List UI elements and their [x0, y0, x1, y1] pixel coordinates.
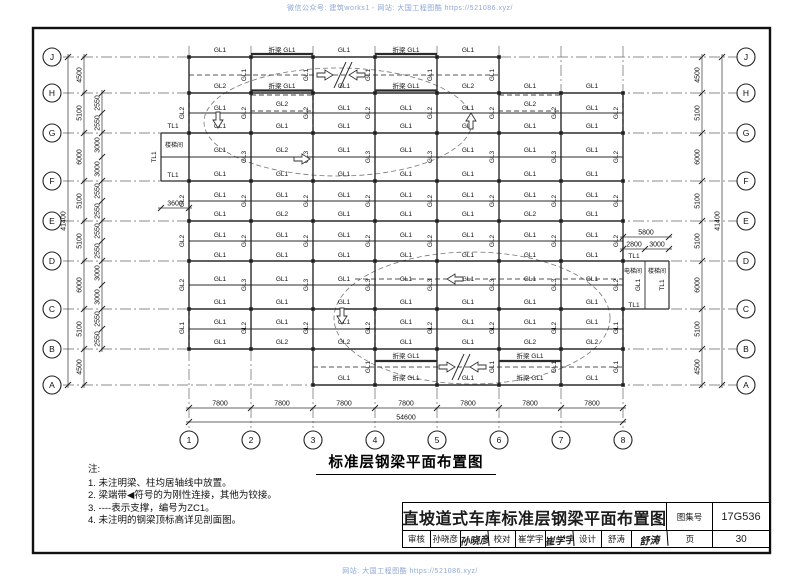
beam-label-vertical: GL1 — [489, 360, 496, 373]
axis-bubble-label: B — [743, 344, 749, 354]
notes-heading: 注: — [88, 464, 277, 477]
beam-label-vertical: GL3 — [303, 278, 310, 291]
beam-label: 折梁 GL1 — [268, 81, 295, 90]
column-node — [373, 259, 377, 263]
beam-label: GL1 — [214, 232, 227, 239]
beam-label-vertical: GL3 — [241, 278, 248, 291]
beam-label-vertical: GL2 — [303, 106, 310, 119]
dim-text: 5100 — [77, 233, 84, 249]
beam-label: GL1 — [462, 192, 475, 199]
column-node — [249, 307, 253, 311]
beam-label-vertical: GL2 — [365, 234, 372, 247]
ramp-direction-arrow — [439, 362, 455, 372]
column-node — [373, 55, 377, 59]
beam-label-vertical: GL3 — [427, 278, 434, 291]
beam-label: GL1 — [462, 339, 475, 346]
beam-label-vertical: GL1 — [427, 68, 434, 81]
column-node — [497, 347, 501, 351]
beam-label: GL2 — [276, 101, 289, 108]
beam-label-vertical: GL2 — [489, 106, 496, 119]
column-node — [187, 307, 191, 311]
dim-text: 6000 — [77, 149, 84, 165]
ramp-direction-arrow — [470, 362, 486, 372]
column-node — [249, 259, 253, 263]
dim-text: 2550 — [95, 203, 102, 219]
column-node — [249, 219, 253, 223]
beam-label: 折梁 GL1 — [516, 351, 543, 360]
beam-label: GL1 — [400, 105, 413, 112]
column-node — [187, 219, 191, 223]
beam-label: GL1 — [524, 299, 537, 306]
dim-text: 5100 — [77, 321, 84, 337]
column-node — [311, 91, 315, 95]
beam-label: GL1 — [524, 192, 537, 199]
beam-label-vertical: GL3 — [241, 150, 248, 163]
dim-text: 5100 — [695, 193, 702, 209]
beam-label-vertical: GL2 — [365, 106, 372, 119]
beam-label: GL1 — [400, 319, 413, 326]
axis-bubble-label: G — [49, 128, 56, 138]
column-node — [559, 347, 563, 351]
column-node — [497, 91, 501, 95]
axis-bubble-label: 5 — [435, 435, 440, 445]
dim-text: 5800 — [638, 230, 654, 237]
column-node — [497, 307, 501, 311]
beam-label: GL1 — [586, 276, 599, 283]
proofreader-name: 崔学宇 — [516, 531, 546, 547]
beam-label: GL1 — [338, 147, 351, 154]
beam-label: GL1 — [214, 147, 227, 154]
beam-label: GL1 — [338, 123, 351, 130]
column-node — [559, 91, 563, 95]
column-node — [311, 383, 315, 387]
column-node — [187, 91, 191, 95]
beam-label-vertical: GL2 — [427, 321, 434, 334]
beam-label: GL1 — [276, 171, 289, 178]
beam-label-vertical: GL2 — [179, 234, 186, 247]
beam-label-vertical: GL1 — [551, 360, 558, 373]
column-node — [187, 259, 191, 263]
beam-label: GL1 — [338, 375, 351, 382]
designer-signature: 舒涛 — [631, 530, 668, 548]
beam-label: GL1 — [462, 252, 475, 259]
axis-bubble-label: 4 — [373, 435, 378, 445]
atlas-number-label: 图集号 — [667, 503, 713, 530]
notes-block: 注: 1. 未注明梁、柱均居轴线中放置。 2. 梁端带◀符号的为刚性连接，其他为… — [88, 464, 277, 528]
column-node — [311, 259, 315, 263]
beam-label: GL1 — [586, 83, 599, 90]
axis-bubble-label: B — [49, 344, 55, 354]
proofreader-signature: 崔学宇 — [546, 530, 575, 548]
dim-text: 3000 — [95, 265, 102, 281]
column-node — [435, 179, 439, 183]
axis-bubble-label: 7 — [559, 435, 564, 445]
beam-label-vertical: GL2 — [489, 194, 496, 207]
beam-label: GL1 — [462, 171, 475, 178]
column-node — [435, 383, 439, 387]
dim-text: 5100 — [695, 105, 702, 121]
beam-label: GL1 — [338, 83, 351, 90]
dim-text: 7800 — [398, 401, 414, 408]
beam-label: GL1 — [462, 105, 475, 112]
column-node — [187, 347, 191, 351]
note-item: 1. 未注明梁、柱均居轴线中放置。 — [88, 478, 277, 491]
beam-label: GL1 — [214, 319, 227, 326]
beam-label-vertical: GL2 — [613, 150, 620, 163]
column-node — [435, 347, 439, 351]
beam-label: GL1 — [462, 299, 475, 306]
column-node — [373, 219, 377, 223]
reviewer-signature: 孙晓彦 — [460, 530, 489, 548]
dim-text: 6000 — [77, 277, 84, 293]
reviewer-name: 孙晓彦 — [431, 531, 461, 547]
beam-label: GL1 — [400, 147, 413, 154]
axis-bubble-label: 8 — [621, 435, 626, 445]
beam-label: GL1 — [462, 276, 475, 283]
beam-label-vertical: GL2 — [179, 106, 186, 119]
room-label: TL1 — [628, 302, 640, 309]
column-node — [559, 307, 563, 311]
column-node — [311, 307, 315, 311]
beam-label-vertical: GL2 — [427, 194, 434, 207]
beam-label: GL1 — [586, 319, 599, 326]
beam-label: GL1 — [338, 192, 351, 199]
beam-label: GL1 — [338, 47, 351, 54]
axis-bubble-label: C — [743, 304, 749, 314]
beam-label: GL1 — [276, 232, 289, 239]
beam-label: GL2 — [586, 339, 599, 346]
title-block-row-credits: 审核 孙晓彦 孙晓彦 校对 崔学宇 崔学宇 设计 舒涛 舒涛 页 30 — [403, 531, 769, 547]
beam-label-vertical: GL1 — [635, 278, 642, 291]
column-node — [621, 383, 625, 387]
beam-label: GL1 — [276, 299, 289, 306]
beam-label-vertical: GL2 — [613, 194, 620, 207]
beam-label: GL1 — [462, 375, 475, 382]
beam-label: GL1 — [214, 252, 227, 259]
beam-label: GL1 — [586, 299, 599, 306]
beam-label: GL1 — [214, 47, 227, 54]
beam-label: 折梁 GL1 — [516, 373, 543, 382]
beam-label: GL1 — [400, 276, 413, 283]
beam-label-vertical: GL3 — [365, 150, 372, 163]
beam-label: GL2 — [338, 339, 351, 346]
column-node — [435, 91, 439, 95]
beam-label: GL1 — [586, 123, 599, 130]
beam-label-vertical: GL2 — [427, 234, 434, 247]
beam-label: GL1 — [586, 252, 599, 259]
beam-label: GL1 — [524, 83, 537, 90]
beam-label: GL1 — [276, 192, 289, 199]
axis-bubble-label: C — [49, 304, 55, 314]
beam-label-vertical: GL2 — [365, 194, 372, 207]
beam-label: GL1 — [400, 211, 413, 218]
beam-label: GL1 — [338, 232, 351, 239]
axis-bubble-label: F — [49, 176, 54, 186]
beam-label-vertical: GL3 — [551, 150, 558, 163]
watermark-bottom: 网站: 大国工程图酷 https://521086.xyz/ — [250, 566, 570, 576]
beam-label: GL1 — [524, 147, 537, 154]
column-node — [249, 347, 253, 351]
room-label: TL1 — [628, 253, 640, 260]
beam-label: GL1 — [214, 171, 227, 178]
beam-label: GL1 — [400, 299, 413, 306]
column-node — [373, 307, 377, 311]
beam-label-vertical: GL2 — [241, 321, 248, 334]
beam-label-vertical: GL1 — [365, 360, 372, 373]
column-node — [559, 131, 563, 135]
beam-label: GL2 — [524, 101, 537, 108]
beam-label-vertical: GL2 — [613, 278, 620, 291]
dim-text: 7800 — [584, 401, 600, 408]
beam-label-vertical: GL3 — [489, 278, 496, 291]
beam-label: GL1 — [586, 105, 599, 112]
column-node — [311, 179, 315, 183]
note-item: 2. 梁端带◀符号的为刚性连接，其他为铰接。 — [88, 490, 277, 503]
dim-text: 2550 — [95, 95, 102, 111]
design-label: 设计 — [574, 531, 602, 547]
column-node — [497, 131, 501, 135]
column-node — [621, 179, 625, 183]
beam-label: GL1 — [586, 171, 599, 178]
dim-text: 2550 — [95, 183, 102, 199]
beam-label-vertical: GL2 — [489, 321, 496, 334]
beam-label-vertical: GL1 — [365, 68, 372, 81]
column-node — [621, 347, 625, 351]
axis-bubble-label: H — [49, 88, 55, 98]
dim-text: 2800 — [626, 242, 642, 249]
beam-label: GL1 — [524, 171, 537, 178]
designer-name: 舒涛 — [602, 531, 632, 547]
dim-text: 7800 — [522, 401, 538, 408]
beam-label-vertical: GL2 — [241, 234, 248, 247]
beam-label: GL1 — [586, 192, 599, 199]
sheet-title: 直坡道式车库标准层钢梁平面布置图 — [403, 503, 667, 530]
column-node — [311, 347, 315, 351]
beam-label-vertical: GL2 — [241, 194, 248, 207]
beam-label: GL1 — [586, 211, 599, 218]
dim-text: 2550 — [95, 115, 102, 131]
column-node — [559, 179, 563, 183]
beam-label: GL1 — [338, 105, 351, 112]
column-node — [621, 307, 625, 311]
column-node — [373, 179, 377, 183]
dim-text: 4500 — [695, 359, 702, 375]
title-block-row-main: 直坡道式车库标准层钢梁平面布置图 图集号 17G536 — [403, 503, 769, 531]
axis-bubble-label: H — [743, 88, 749, 98]
dim-text: 7800 — [212, 401, 228, 408]
beam-label-vertical: GL2 — [427, 106, 434, 119]
dim-text: 2550 — [95, 243, 102, 259]
beam-label: GL1 — [338, 171, 351, 178]
beam-label: 折梁 GL1 — [392, 373, 419, 382]
beam-label-vertical: GL2 — [551, 321, 558, 334]
beam-label-vertical: GL2 — [303, 234, 310, 247]
dim-text: 7800 — [274, 401, 290, 408]
dim-text: 5100 — [77, 105, 84, 121]
beam-label: GL1 — [400, 232, 413, 239]
page-number: 30 — [713, 531, 769, 547]
dim-text: 54600 — [396, 415, 416, 422]
beam-label-vertical: GL1 — [179, 321, 186, 334]
beam-label-vertical: GL2 — [613, 234, 620, 247]
column-node — [497, 55, 501, 59]
beam-label: GL1 — [462, 211, 475, 218]
beam-label: 折梁 GL1 — [392, 351, 419, 360]
axis-bubble-label: J — [50, 52, 54, 62]
dim-text: 6000 — [695, 277, 702, 293]
dim-text: 7800 — [460, 401, 476, 408]
axis-bubble-label: E — [743, 216, 749, 226]
beam-label-vertical: GL1 — [241, 68, 248, 81]
column-node — [435, 55, 439, 59]
axis-bubble-label: 2 — [249, 435, 254, 445]
column-node — [621, 131, 625, 135]
beam-label-vertical: GL3 — [427, 150, 434, 163]
beam-label: GL2 — [276, 211, 289, 218]
axis-bubble-label: 6 — [497, 435, 502, 445]
page-label: 页 — [668, 531, 714, 547]
beam-label: GL1 — [214, 192, 227, 199]
dim-text: 4500 — [77, 67, 84, 83]
column-node — [497, 259, 501, 263]
beam-label: GL1 — [338, 252, 351, 259]
column-node — [373, 131, 377, 135]
beam-label: 折梁 GL1 — [392, 81, 419, 90]
dim-text: 2550 — [95, 331, 102, 347]
room-label: 楼梯间 — [648, 267, 666, 275]
beam-label: GL1 — [462, 147, 475, 154]
column-node — [187, 55, 191, 59]
beam-label: GL1 — [214, 211, 227, 218]
column-node — [559, 383, 563, 387]
axis-bubble-label: A — [49, 380, 55, 390]
ramp-direction-arrow — [349, 70, 365, 80]
beam-label-vertical: GL2 — [551, 106, 558, 119]
beam-label-vertical: GL2 — [303, 194, 310, 207]
beam-label-vertical: GL1 — [613, 321, 620, 334]
dim-text: 2550 — [95, 311, 102, 327]
beam-label-vertical: TL1 — [659, 279, 666, 291]
beam-label: GL1 — [400, 123, 413, 130]
beam-label-vertical: GL2 — [489, 234, 496, 247]
beam-label: GL2 — [276, 147, 289, 154]
room-label: 电梯间 — [624, 267, 642, 275]
dim-text: 41400 — [61, 211, 68, 231]
review-label: 审核 — [403, 531, 431, 547]
beam-label-vertical: GL2 — [179, 278, 186, 291]
beam-label: GL1 — [276, 276, 289, 283]
axis-bubble-label: J — [744, 52, 748, 62]
beam-label: GL1 — [524, 232, 537, 239]
column-node — [435, 219, 439, 223]
column-node — [621, 219, 625, 223]
dim-text: 3000 — [649, 242, 665, 249]
room-label: TL1 — [167, 172, 179, 179]
axis-bubble-label: D — [743, 256, 749, 266]
beam-label: GL1 — [586, 232, 599, 239]
beam-label: GL1 — [462, 47, 475, 54]
axis-bubble-label: 1 — [187, 435, 192, 445]
beam-label: GL1 — [338, 276, 351, 283]
beam-label-vertical: GL3 — [489, 150, 496, 163]
beam-label-vertical: GL2 — [613, 106, 620, 119]
beam-label-vertical: GL3 — [551, 278, 558, 291]
dim-text: 7800 — [336, 401, 352, 408]
beam-label-vertical: GL1 — [303, 68, 310, 81]
beam-label: GL1 — [462, 232, 475, 239]
beam-label: GL1 — [400, 192, 413, 199]
column-node — [311, 219, 315, 223]
beam-label-vertical: GL1 — [489, 68, 496, 81]
beam-label: GL2 — [276, 339, 289, 346]
beam-label: GL1 — [462, 319, 475, 326]
dim-text: 3000 — [95, 137, 102, 153]
column-node — [249, 55, 253, 59]
axis-bubble-label: F — [743, 176, 748, 186]
beam-label-vertical: GL2 — [303, 321, 310, 334]
beam-label: GL1 — [586, 375, 599, 382]
column-node — [249, 179, 253, 183]
beam-label: GL1 — [338, 211, 351, 218]
dim-text: 5100 — [695, 233, 702, 249]
dim-text: 2550 — [95, 223, 102, 239]
beam-label: 折梁 GL1 — [268, 45, 295, 54]
note-item: 3. ----表示支撑，编号为ZC1。 — [88, 503, 277, 516]
beam-label: GL1 — [276, 252, 289, 259]
axis-bubble-label: D — [49, 256, 55, 266]
column-node — [373, 347, 377, 351]
beam-label: GL1 — [586, 147, 599, 154]
axis-bubble-label: A — [743, 380, 749, 390]
column-node — [249, 131, 253, 135]
beam-label: GL1 — [214, 299, 227, 306]
beam-label: GL1 — [524, 276, 537, 283]
beam-label: GL1 — [400, 171, 413, 178]
dim-text: 6000 — [695, 149, 702, 165]
beam-label: GL1 — [276, 319, 289, 326]
axis-bubble-label: 3 — [311, 435, 316, 445]
column-node — [373, 91, 377, 95]
beam-label: GL1 — [338, 299, 351, 306]
beam-label: GL1 — [400, 339, 413, 346]
axis-bubble-label: E — [49, 216, 55, 226]
column-node — [187, 179, 191, 183]
beam-label-vertical: GL2 — [241, 106, 248, 119]
beam-label: GL2 — [214, 83, 227, 90]
beam-label-vertical: GL2 — [551, 194, 558, 207]
beam-label-vertical: GL3 — [365, 278, 372, 291]
dim-text: 3000 — [95, 289, 102, 305]
column-node — [187, 131, 191, 135]
beam-label: GL1 — [276, 123, 289, 130]
note-item: 4. 未注明的钢梁顶标高详见剖面图。 — [88, 515, 277, 528]
beam-label: GL1 — [400, 252, 413, 259]
column-node — [435, 307, 439, 311]
column-node — [311, 131, 315, 135]
proof-label: 校对 — [489, 531, 517, 547]
dim-text: 4500 — [77, 359, 84, 375]
column-node — [497, 179, 501, 183]
dim-text: 41400 — [715, 211, 722, 231]
beam-label-vertical: GL2 — [365, 321, 372, 334]
column-node — [373, 383, 377, 387]
column-node — [621, 259, 625, 263]
dim-text: 3600 — [167, 201, 183, 208]
beam-label-vertical: GL1 — [613, 360, 620, 373]
room-label: TL1 — [167, 123, 179, 130]
beam-label: GL2 — [462, 83, 475, 90]
column-node — [559, 259, 563, 263]
